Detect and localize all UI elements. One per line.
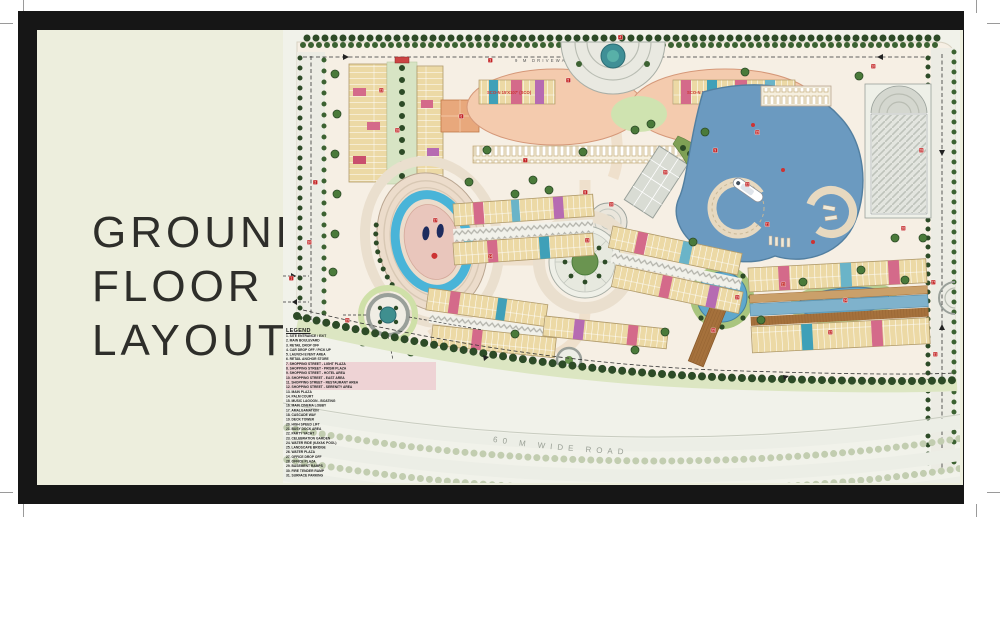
marker-number: 16 (610, 203, 614, 207)
marker-number: 14 (489, 255, 493, 259)
music-lagoon-lake (676, 85, 863, 262)
marker-number: 12 (829, 331, 833, 335)
legend-item: 31. SURFACE PARKING (286, 473, 436, 478)
marker-number: 27 (932, 281, 936, 285)
marker-number: 2 (314, 181, 316, 185)
page: { "page": { "title_lines": ["GROUND", "F… (0, 0, 1000, 517)
marker-number: 29 (346, 319, 350, 323)
marker-number: 31 (934, 353, 938, 357)
marker-number: 17 (434, 219, 438, 223)
marker-number: 15 (756, 131, 760, 135)
marker-number: 13 (586, 239, 590, 243)
marker-number: 24 (844, 299, 848, 303)
marker-number: 6 (460, 115, 462, 119)
title-line-2: FLOOR (92, 260, 312, 314)
marker-number: 8 (584, 191, 586, 195)
marker-number: 23 (380, 89, 384, 93)
marker-number: 7 (524, 159, 526, 163)
marker-number: 28 (920, 149, 924, 153)
sco-band-left-label: SCO-N 15'X107' (SCO) (487, 90, 532, 95)
title-line-3: LAYOUT (92, 314, 312, 368)
marker-number: 4 (619, 36, 621, 40)
legend: LEGEND 1. SITE ENTRANCE / EXIT2. MAIN BO… (286, 328, 436, 622)
marker-number: 21 (766, 223, 770, 227)
restaurant-street-water-channel (748, 259, 930, 353)
left-title-panel: GROUND FLOOR LAYOUT (37, 30, 283, 485)
legend-items: 1. SITE ENTRANCE / EXIT2. MAIN BOULEVARD… (286, 334, 436, 478)
marker-number: 22 (746, 183, 750, 187)
marker-number: 25 (712, 329, 716, 333)
marker-number: 5 (567, 79, 569, 83)
east-driveway (928, 48, 955, 472)
marker-number: 26 (902, 227, 906, 231)
marker-number: 20 (664, 171, 668, 175)
marker-number: 30 (308, 241, 312, 245)
marker-number: 11 (782, 283, 786, 287)
marker-number: 3 (489, 59, 491, 63)
north-driveway-label: 9 M DRIVEWAY (515, 58, 571, 63)
marker-number: 18 (396, 129, 400, 133)
title-line-1: GROUND (92, 206, 312, 260)
marker-number: 19 (736, 296, 740, 300)
marker-number: 1 (290, 277, 292, 281)
marker-number: 10 (872, 65, 876, 69)
central-lawn (611, 96, 667, 132)
marker-number: 9 (714, 149, 716, 153)
page-title: GROUND FLOOR LAYOUT (92, 206, 312, 368)
shopping-street-rows-centre-west (453, 194, 594, 265)
